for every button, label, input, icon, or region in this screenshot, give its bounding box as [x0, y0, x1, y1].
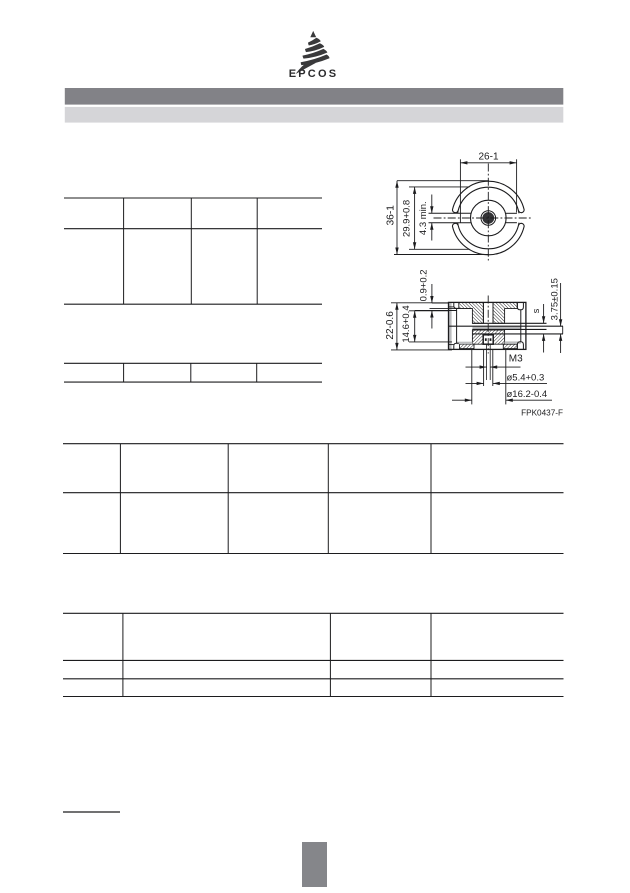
svg-text:0.9+0.2: 0.9+0.2	[419, 269, 430, 301]
svg-text:4.3 min.: 4.3 min.	[418, 201, 429, 235]
svg-text:36-1: 36-1	[386, 205, 397, 226]
svg-text:M3: M3	[509, 353, 523, 364]
svg-text:ø16.2-0.4: ø16.2-0.4	[507, 389, 548, 400]
svg-text:ø5.4+0.3: ø5.4+0.3	[507, 373, 545, 384]
svg-text:EPCOS: EPCOS	[289, 68, 339, 80]
svg-text:29.9+0.8: 29.9+0.8	[402, 200, 413, 237]
svg-text:s: s	[531, 308, 542, 313]
svg-text:26-1: 26-1	[478, 152, 498, 163]
svg-text:3.75±0.15: 3.75±0.15	[549, 278, 560, 320]
svg-text:22-0.6: 22-0.6	[385, 311, 396, 340]
svg-text:14.6+0.4: 14.6+0.4	[401, 305, 412, 342]
svg-text:FPK0437-F: FPK0437-F	[521, 408, 563, 417]
